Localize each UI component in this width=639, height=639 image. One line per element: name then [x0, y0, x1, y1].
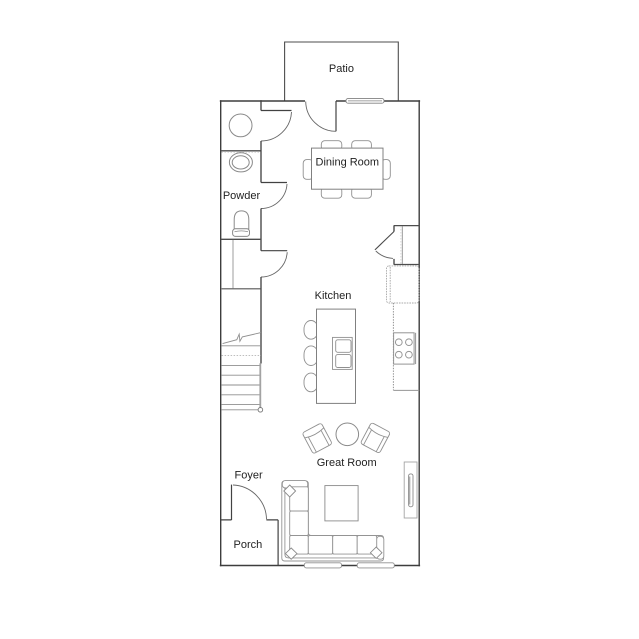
svg-text:Great Room: Great Room: [317, 457, 377, 469]
svg-text:Kitchen: Kitchen: [315, 290, 352, 302]
svg-text:Patio: Patio: [329, 63, 354, 75]
svg-text:Porch: Porch: [234, 539, 263, 551]
svg-text:Foyer: Foyer: [235, 470, 263, 482]
svg-text:Dining Room: Dining Room: [316, 157, 380, 169]
svg-text:Powder: Powder: [223, 190, 261, 202]
